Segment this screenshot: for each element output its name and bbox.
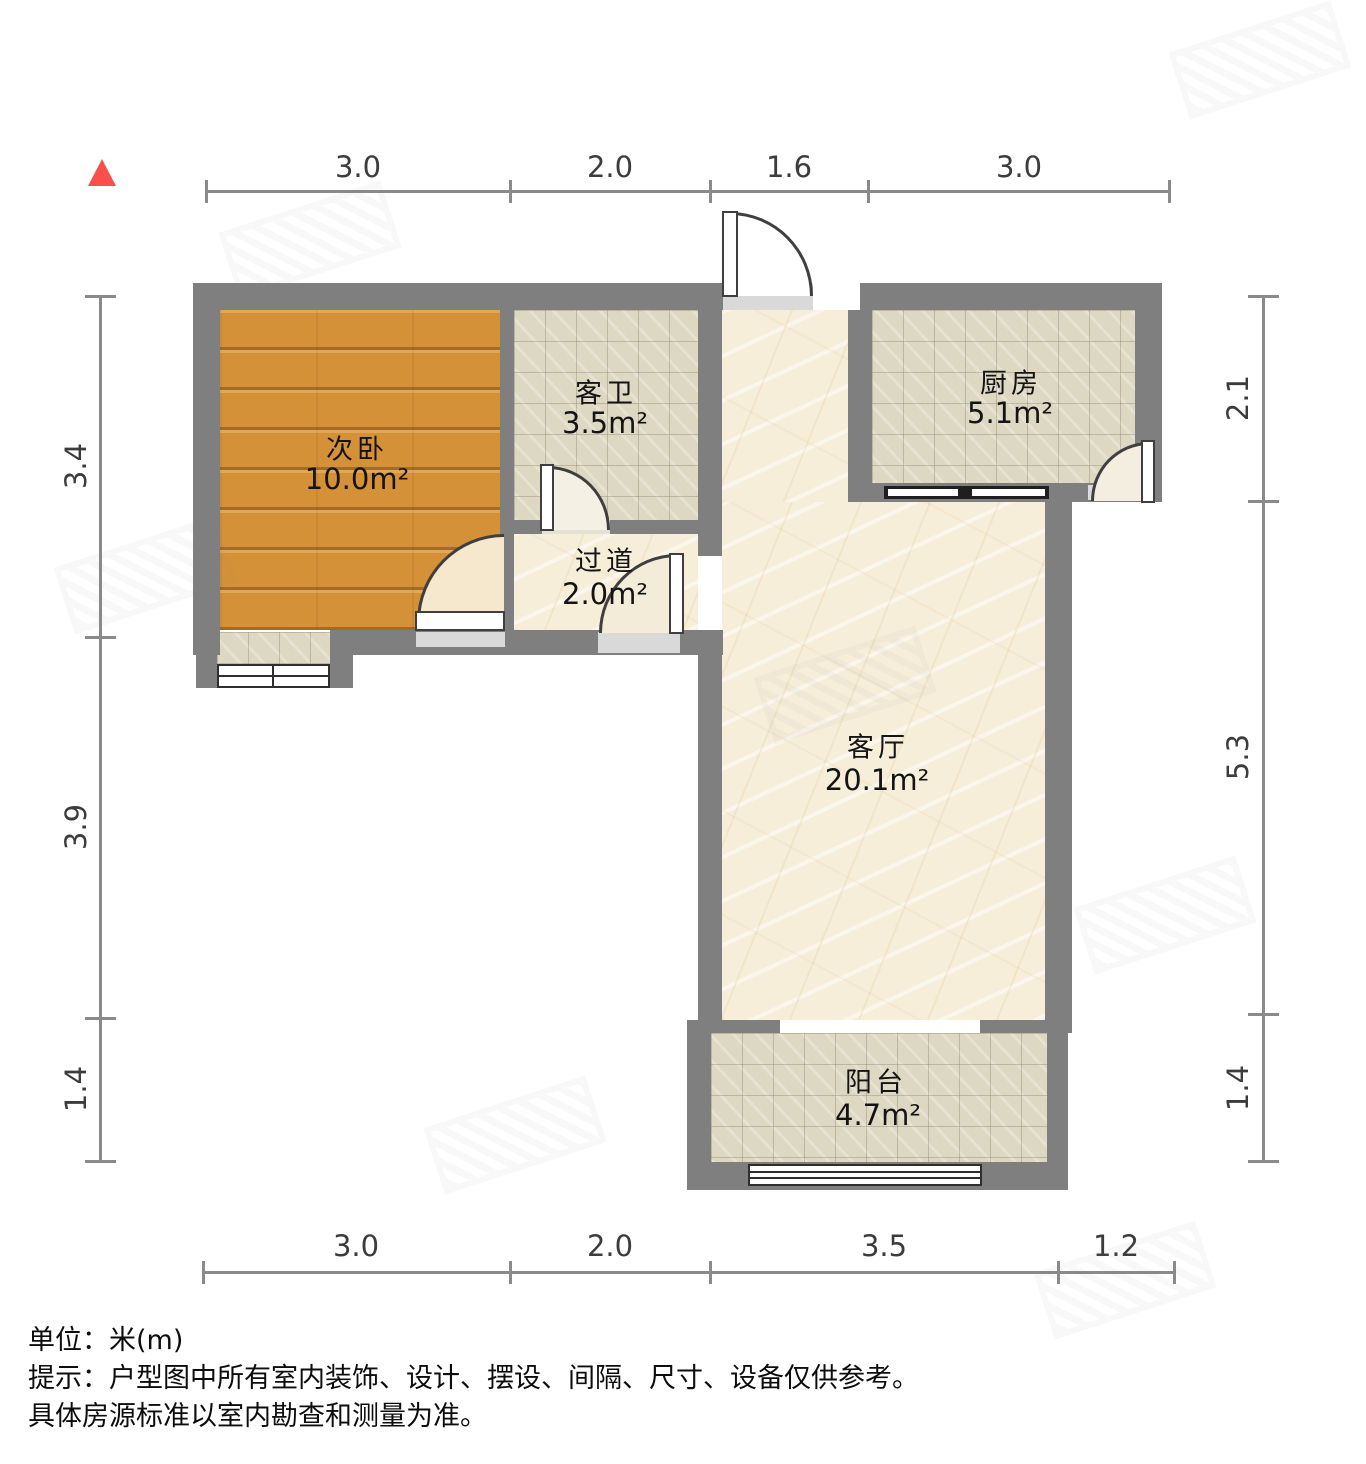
- hallway-area: 2.0m²: [562, 577, 648, 611]
- tick: [1248, 295, 1279, 298]
- wall-kitchen-west: [848, 297, 872, 492]
- tick: [867, 180, 870, 203]
- balcony-window: [748, 1164, 982, 1186]
- balcony-area: 4.7m²: [835, 1098, 921, 1132]
- tick: [1168, 180, 1171, 203]
- bathroom-label: 客卫: [575, 372, 637, 411]
- bathroom-door-leaf: [540, 464, 554, 531]
- tick: [709, 180, 712, 203]
- dim-right-2: 5.3: [1221, 712, 1255, 802]
- bay-window-sill: [217, 632, 330, 665]
- bedroom-area: 10.0m²: [305, 462, 409, 496]
- dim-left-2: 3.9: [59, 782, 93, 872]
- note-tip-line1: 提示：户型图中所有室内装饰、设计、摆设、间隔、尺寸、设备仅供参考。: [28, 1356, 919, 1395]
- tick: [205, 180, 208, 203]
- dimension-line-left: [99, 296, 102, 1163]
- dim-bottom-2: 2.0: [565, 1229, 655, 1263]
- dim-right-3: 1.4: [1221, 1043, 1255, 1133]
- tick: [202, 1261, 205, 1284]
- note-unit: 单位：米(m): [28, 1318, 183, 1357]
- kitchen-passthrough-window-2: [972, 489, 1045, 496]
- livingroom-label: 客厅: [847, 726, 909, 765]
- dimension-line-bottom: [203, 1271, 1175, 1274]
- bedroom-door-threshold: [416, 632, 505, 647]
- wall-left-exterior: [193, 283, 220, 655]
- bathroom-area: 3.5m²: [562, 406, 648, 440]
- bedroom-door-leaf: [415, 611, 505, 631]
- balcony-label: 阳台: [845, 1061, 907, 1100]
- dim-top-4: 3.0: [974, 150, 1064, 184]
- dim-bottom-1: 3.0: [311, 1229, 401, 1263]
- wall-living-east: [1045, 502, 1072, 1033]
- floorplan-canvas: 次卧 10.0m² 客卫 3.5m² 厨房 5.1m² 过道 2.0m² 客厅 …: [0, 0, 1366, 1464]
- dim-left-1: 3.4: [59, 421, 93, 511]
- watermark: [218, 180, 401, 299]
- dim-right-1: 2.1: [1221, 353, 1255, 443]
- wall-bath-east: [698, 310, 722, 556]
- hallway-door-leaf: [669, 553, 684, 634]
- tick: [1248, 1160, 1279, 1163]
- watermark: [1168, 0, 1351, 119]
- kitchen-passthrough-window-1: [888, 489, 958, 496]
- dim-top-1: 3.0: [313, 150, 403, 184]
- bedroom-label: 次卧: [326, 428, 388, 467]
- wall-balcony-top-right: [980, 1020, 1047, 1033]
- watermark: [423, 1075, 606, 1194]
- bedroom-bay-window: [217, 664, 330, 688]
- entrance-door-swing: [730, 212, 813, 296]
- kitchen-door-leaf: [1141, 440, 1155, 503]
- bay-window-pillar-left: [196, 630, 217, 688]
- entrance-door-leaf: [722, 211, 738, 297]
- hall-door-threshold: [598, 632, 680, 653]
- kitchen-area: 5.1m²: [967, 396, 1053, 430]
- tick: [85, 1160, 116, 1163]
- tick: [1248, 1013, 1279, 1016]
- dimension-line-right: [1262, 296, 1265, 1163]
- livingroom-area: 20.1m²: [825, 763, 929, 797]
- wall-top-right: [860, 283, 1162, 310]
- foyer-floor: [722, 310, 848, 502]
- watermark: [1073, 855, 1256, 974]
- bay-window-pillar-right: [330, 630, 353, 688]
- kitchen-label: 厨房: [980, 362, 1042, 401]
- tick: [509, 1261, 512, 1284]
- tick: [709, 1261, 712, 1284]
- tick: [85, 295, 116, 298]
- tick: [85, 636, 116, 639]
- north-arrow-icon: [88, 159, 116, 186]
- note-tip-line2: 具体房源标准以室内勘查和测量为准。: [28, 1394, 487, 1433]
- entrance-opening: [813, 283, 860, 310]
- dim-bottom-3: 3.5: [839, 1229, 929, 1263]
- tick: [85, 1017, 116, 1020]
- dim-top-3: 1.6: [744, 150, 834, 184]
- wall-balcony-top-left: [698, 1020, 780, 1033]
- tick: [1248, 500, 1279, 503]
- hallway-label: 过道: [575, 540, 637, 579]
- tick: [509, 180, 512, 203]
- dim-top-2: 2.0: [565, 150, 655, 184]
- dim-left-3: 1.4: [59, 1044, 93, 1134]
- wall-living-west: [698, 655, 722, 1033]
